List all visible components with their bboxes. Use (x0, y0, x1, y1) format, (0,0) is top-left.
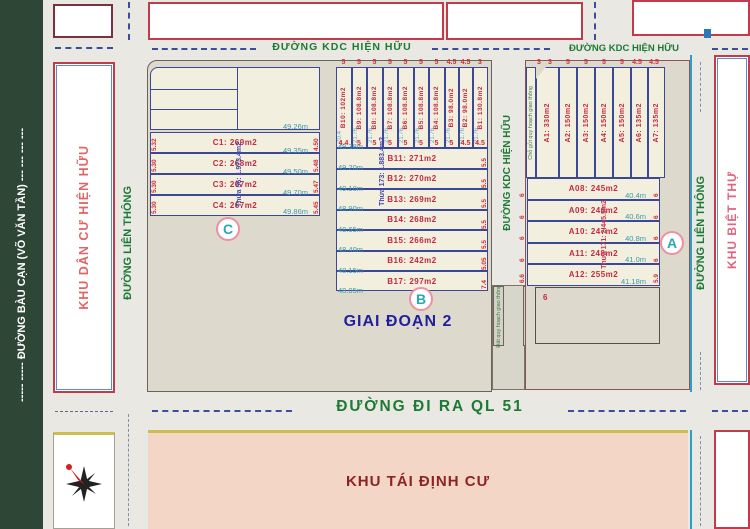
road-dash (594, 2, 596, 40)
road-dash (55, 411, 113, 412)
road-dash (152, 410, 292, 412)
marker-a: A (660, 231, 684, 255)
measure-label: 48.65m (338, 225, 363, 234)
lot-b4: B4: 108.8m2 21.76 (429, 67, 445, 148)
measure-label: 49.20m (338, 163, 363, 172)
thua-171-title: Thửa 171: 2.445.5m2 (598, 188, 610, 280)
area-khu-dan-cu-label: KHU DÂN CƯ HIỆN HỮU (77, 145, 91, 310)
existing-parcel-top-left (53, 4, 113, 38)
area-khu-biet-thu: KHU BIỆT THỰ (714, 55, 750, 385)
dim-label: 6 (519, 204, 526, 219)
dim-label: 5.9 (653, 268, 660, 283)
existing-parcel-top-2 (446, 2, 583, 40)
lot-b3: B3: 98.0m2 21.76 (445, 67, 459, 148)
dim-label: 5 (429, 59, 445, 66)
dim-label: 6 (519, 182, 526, 197)
measure-label: 49.35m (243, 146, 308, 155)
parcel-block-top (150, 67, 320, 130)
dim-label: 6 (653, 247, 660, 262)
road-lien-thong-right-label: ĐƯỜNG LIÊN THÔNG (695, 176, 707, 290)
dim-label: 6 (519, 247, 526, 262)
dim-label: 5.30 (151, 155, 158, 172)
thua-173-title: Thửa 173: 1.883.4m2 (376, 115, 388, 227)
road-lien-thong-left: ĐƯỜNG LIÊN THÔNG (112, 135, 144, 350)
measure-label: 49.38m (338, 142, 363, 151)
compass-icon (61, 459, 107, 505)
dim-label: 3 (472, 59, 488, 66)
measure-label: 40.4m (586, 191, 646, 200)
road-dash (712, 48, 748, 50)
dim-label: 6.6 (519, 268, 526, 283)
dim-label: 5.5 (481, 191, 488, 208)
existing-parcel-top-right (632, 0, 750, 36)
lot-a2: A2: 150m2 (559, 67, 577, 178)
lot-a4: A4: 150m2 (595, 67, 613, 178)
road-dash (568, 410, 686, 412)
dim-label: 5.47 (313, 176, 320, 193)
compass-block (53, 432, 115, 529)
road-ql51-label: ĐƯỜNG ĐI RA QL 51 (295, 398, 565, 416)
reserved-parcel (535, 287, 660, 344)
measure-label: 48.05m (338, 286, 363, 295)
dim-label: 5 (382, 59, 398, 66)
road-bau-can: ----- ----- ĐƯỜNG BÀU CẠN (VÕ VĂN TẦN) -… (0, 0, 43, 529)
reserved-parcel-mark: 6 (543, 293, 547, 302)
road-dash (712, 410, 748, 412)
dim-label: 3 (543, 59, 557, 66)
lot-a6: A6: 135m2 (631, 67, 648, 178)
lot-b2: B2: 98.0m2 21.76 (459, 67, 473, 148)
dim-label: 6 (653, 204, 660, 219)
dim-label: 6 (519, 225, 526, 240)
blue-marker (704, 29, 711, 38)
parcel-line (151, 89, 237, 90)
road-dash (432, 48, 550, 50)
dim-label: 5 (398, 140, 414, 147)
dim-label: 4.50 (313, 134, 320, 151)
dim-label: 5 (398, 59, 414, 66)
lot-b5: B5: 108.8m2 21.76 (414, 67, 430, 148)
road-dash (152, 48, 256, 50)
dim-label: 5.30 (151, 176, 158, 193)
dim-label: 5 (351, 59, 367, 66)
road-dash (128, 414, 129, 526)
dim-label: 5.32 (151, 134, 158, 151)
road-dash (700, 62, 701, 112)
measure-label: 41.18m (586, 277, 646, 286)
dim-label: 5.5 (481, 171, 488, 188)
dim-label: 5 (429, 140, 445, 147)
road-dash (700, 352, 701, 390)
dim-label: 4.5 (630, 59, 644, 66)
dim-label: 4.5 (647, 59, 661, 66)
dim-label: 5.30 (151, 197, 158, 214)
dim-label: 5 (597, 59, 611, 66)
road-lien-thong-right: ĐƯỜNG LIÊN THÔNG (688, 115, 714, 350)
traffic-reserve-strip-left: Đất quy hoạch giao thông (493, 286, 504, 346)
area-khu-dan-cu: KHU DÂN CƯ HIỆN HỮU (53, 62, 115, 393)
road-dash (128, 2, 130, 40)
dim-label: 5.45 (313, 197, 320, 214)
dim-label: 5 (413, 140, 429, 147)
lot-a5: A5: 150m2 (613, 67, 631, 178)
measure-label: 48.40m (338, 245, 363, 254)
marker-b: B (409, 287, 433, 311)
dim-label: 5 (561, 59, 575, 66)
lot-b1: B1: 130.8m2 21.76 (473, 67, 489, 148)
lot-a1: A1: 330m2 (536, 67, 559, 178)
dim-label: 5.5 (481, 150, 488, 167)
road-dash (700, 436, 701, 526)
parcel-line (237, 68, 238, 129)
area-khu-tai-dinh-cu: KHU TÁI ĐỊNH CƯ (148, 430, 688, 529)
road-kdc-hien-huu-top-right-label: ĐƯỜNG KDC HIỆN HỮU (558, 43, 690, 54)
road-kdc-hien-huu-mid-label: ĐƯỜNG KDC HIỆN HỮU (502, 115, 513, 231)
area-khu-biet-thu-label: KHU BIỆT THỰ (725, 171, 739, 269)
dim-label: 6 (653, 225, 660, 240)
measure-label: 49.86m (243, 207, 308, 216)
subdivision-plan-map: ----- ----- ĐƯỜNG BÀU CẠN (VÕ VĂN TẦN) -… (0, 0, 750, 529)
existing-parcel-bottom-right (714, 430, 750, 529)
dim-label: 5 (413, 59, 429, 66)
lot-b10: B10: 102m2 20.4 (336, 67, 352, 148)
lot-b6: B6: 108.8m2 21.76 (398, 67, 414, 148)
dim-label: 6 (653, 182, 660, 197)
thua-56-title: Thửa 56: 1.973.4m2 (233, 133, 245, 215)
phase-2-label: GIAI ĐOẠN 2 (318, 313, 478, 331)
road-kdc-hien-huu-top-left-label: ĐƯỜNG KDC HIỆN HỮU (258, 41, 426, 53)
marker-c: C (216, 217, 240, 241)
measure-label: 41.0m (586, 255, 646, 264)
dim-label: 5 (615, 59, 629, 66)
dim-label: 5.5 (481, 212, 488, 229)
lot-a7: A7: 135m2 (648, 67, 665, 178)
reserve-strip-a: Chỗ gửi quy hoạch giao thông (526, 67, 536, 178)
measure-label: 40.6m (586, 212, 646, 221)
road-bau-can-label: ----- ----- ĐƯỜNG BÀU CẠN (VÕ VĂN TẦN) -… (16, 128, 28, 402)
dim-label: 5 (367, 59, 383, 66)
dim-label: 5.05 (481, 253, 488, 270)
road-kdc-hien-huu-mid: ĐƯỜNG KDC HIỆN HỮU (494, 90, 520, 255)
measure-label: 49.10m (338, 184, 363, 193)
parcel-line (151, 109, 237, 110)
area-khu-tai-dinh-cu-label: KHU TÁI ĐỊNH CƯ (346, 473, 490, 490)
road-lien-thong-left-label: ĐƯỜNG LIÊN THÔNG (122, 186, 134, 300)
measure-label: 49.50m (243, 167, 308, 176)
road-border (690, 430, 692, 529)
lot-a3: A3: 150m2 (577, 67, 595, 178)
lot-b9: B9: 108.8m2 21.76 (352, 67, 368, 148)
existing-parcel-top-1 (148, 2, 444, 40)
dim-label: 7.4 (481, 272, 488, 289)
measure-label: 49.26m (243, 122, 308, 131)
road-dash (55, 47, 113, 49)
measure-label: 40.8m (586, 234, 646, 243)
dim-label: 5 (336, 59, 352, 66)
measure-label: 48.90m (338, 204, 363, 213)
dim-label: 5.5 (481, 232, 488, 249)
dim-label: 4.5 (472, 140, 488, 147)
dim-label: 5 (579, 59, 593, 66)
measure-label: 49.70m (243, 188, 308, 197)
measure-label: 48.15m (338, 266, 363, 275)
dim-label: 5.48 (313, 155, 320, 172)
